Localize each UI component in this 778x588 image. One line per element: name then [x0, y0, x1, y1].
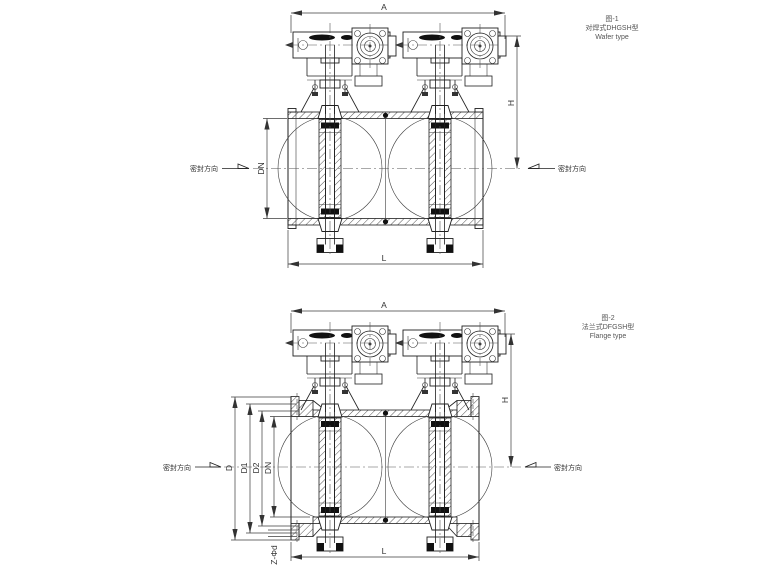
- fig2-dim-z-label: Z-Φd: [269, 545, 279, 565]
- fig2-seal-direction-right: 密封方向: [525, 463, 582, 473]
- fig1-caption-cn: 对焊式DHGSH型: [585, 23, 638, 32]
- fig2-caption: 图-2 法兰式DFGSH型 Flange type: [582, 314, 635, 340]
- fig2-dim-h-label: H: [500, 397, 510, 403]
- fig1-seal-right-arrow-icon: [528, 164, 539, 169]
- fig2-caption-en: Flange type: [590, 333, 627, 340]
- fig2-seal-right-arrow-icon: [525, 463, 536, 468]
- fig2-seal-direction-left: 密封方向: [163, 463, 221, 473]
- fig1-actuator-right: [395, 24, 506, 114]
- valve-drawing-svg: A H DN L 密封方向 密封: [0, 0, 778, 588]
- fig1-seal-left-label: 密封方向: [190, 164, 218, 173]
- fig2-dim-a-label: A: [381, 300, 387, 310]
- fig2-seal-left-label: 密封方向: [163, 463, 191, 472]
- fig2-dimension-d2: D2: [251, 411, 299, 526]
- fig1-seal-right-label: 密封方向: [558, 164, 586, 173]
- fig2-caption-cn: 法兰式DFGSH型: [582, 322, 635, 331]
- fig2-seal-right-label: 密封方向: [554, 463, 582, 472]
- fig1-caption-en: Wafer type: [595, 34, 629, 41]
- fig1-actuator-left: [285, 24, 396, 114]
- fig2-seal-left-arrow-icon: [210, 463, 221, 468]
- fig1-dim-l-label: L: [382, 253, 387, 263]
- drawing-sheet: A H DN L 密封方向 密封: [0, 0, 778, 588]
- fig1-dim-a-label: A: [381, 2, 387, 12]
- fig1-seal-direction-left: 密封方向: [190, 164, 249, 173]
- fig1-caption-number: 图-1: [605, 15, 618, 23]
- fig1-dim-h-label: H: [506, 100, 516, 106]
- fig1-caption: 图-1 对焊式DHGSH型 Wafer type: [585, 15, 638, 41]
- fig2-dim-l-label: L: [382, 546, 387, 556]
- fig2-actuator-left: [285, 322, 396, 412]
- figure-2-flange-type: A H D D1 D2: [163, 300, 634, 565]
- fig1-dim-dn-label: DN: [256, 162, 266, 174]
- fig2-caption-number: 图-2: [601, 314, 614, 322]
- fig2-actuator-right: [395, 322, 506, 412]
- fig2-dim-d2-label: D2: [251, 462, 261, 473]
- fig2-dim-d-label: D: [224, 465, 234, 471]
- fig2-dim-dn-label: DN: [263, 462, 273, 474]
- fig2-dim-d1-label: D1: [239, 462, 249, 473]
- fig1-seal-direction-right: 密封方向: [528, 164, 586, 173]
- fig1-seal-left-arrow-icon: [238, 164, 249, 169]
- figure-1-wafer-type: A H DN L 密封方向 密封: [190, 2, 639, 268]
